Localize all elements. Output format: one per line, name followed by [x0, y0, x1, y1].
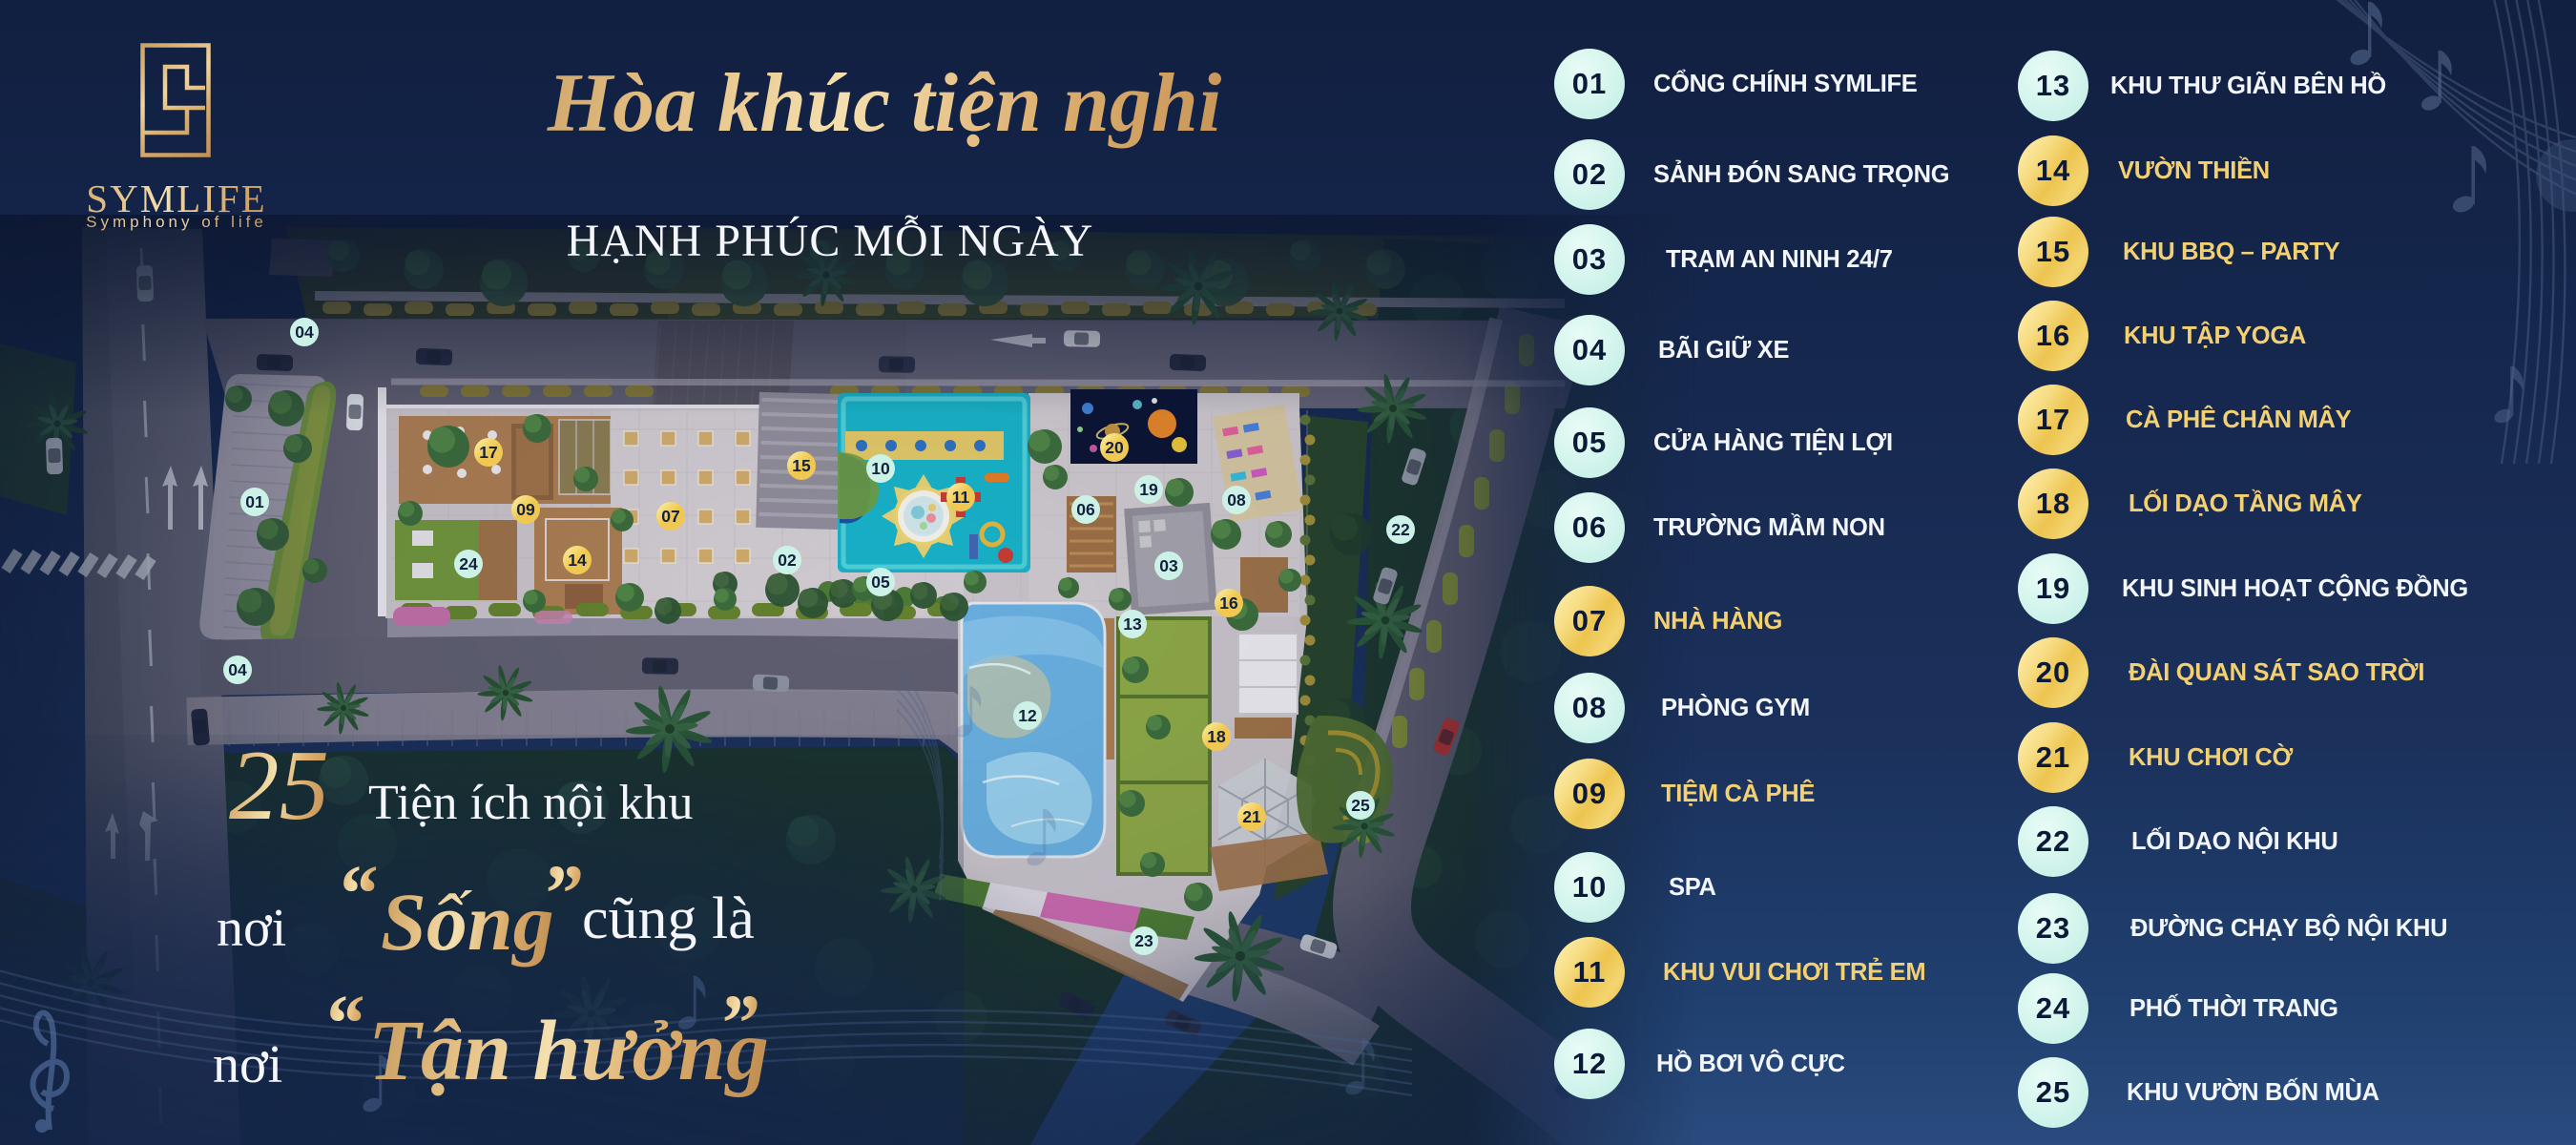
svg-text:19: 19	[1139, 480, 1158, 499]
svg-text:04: 04	[295, 323, 314, 342]
svg-text:07: 07	[661, 507, 679, 526]
svg-text:06: 06	[1076, 500, 1095, 519]
svg-text:20: 20	[1105, 438, 1124, 457]
svg-text:18: 18	[1207, 727, 1226, 746]
svg-text:01: 01	[245, 492, 264, 511]
svg-text:25: 25	[1351, 796, 1370, 815]
svg-text:11: 11	[952, 488, 970, 507]
svg-text:04: 04	[228, 660, 247, 679]
svg-text:08: 08	[1227, 490, 1246, 510]
svg-text:14: 14	[568, 551, 587, 570]
svg-text:15: 15	[792, 456, 811, 475]
svg-text:09: 09	[516, 500, 535, 519]
svg-text:17: 17	[479, 443, 497, 462]
svg-text:23: 23	[1134, 931, 1153, 950]
svg-text:21: 21	[1242, 807, 1261, 826]
svg-text:13: 13	[1123, 614, 1142, 634]
svg-text:10: 10	[871, 459, 890, 478]
svg-text:02: 02	[778, 551, 797, 570]
svg-text:22: 22	[1391, 520, 1410, 539]
svg-text:12: 12	[1018, 706, 1037, 725]
svg-text:05: 05	[871, 572, 890, 592]
svg-text:24: 24	[459, 554, 478, 573]
svg-text:03: 03	[1159, 556, 1178, 575]
svg-text:16: 16	[1219, 593, 1238, 613]
